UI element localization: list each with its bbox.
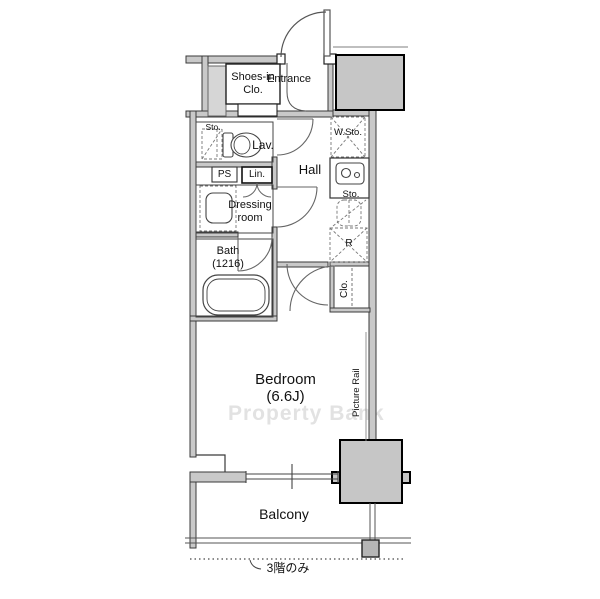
- room-label-balcony: Balcony: [252, 506, 316, 522]
- floorplan: { "plan": { "rooms": { "entrance": "Entr…: [0, 0, 600, 599]
- room-label-bath: Bath (1216): [203, 245, 253, 270]
- pillar-bottom-right: [332, 440, 410, 503]
- bathtub-icon: [203, 275, 269, 315]
- rail-post: [362, 540, 379, 557]
- room-label-bedroom: Bedroom (6.6J): [238, 371, 333, 406]
- label-floor-note: 3階のみ: [258, 562, 318, 576]
- bedroom-door: [287, 264, 335, 311]
- room-label-entrance: Entrance: [260, 73, 318, 86]
- label-storage-lav: Sto.: [202, 123, 224, 133]
- genkan-step-line: [287, 63, 306, 111]
- lav-storage-cabinet: [202, 129, 222, 159]
- room-label-lavatory: Lav.: [248, 139, 278, 153]
- dressing-door: [277, 187, 317, 227]
- room-label-dressing-room: Dressing room: [225, 199, 275, 224]
- label-refrigerator: R: [340, 238, 358, 250]
- label-pipe-space: PS: [212, 169, 237, 181]
- lav-door: [277, 119, 313, 155]
- label-picture-rail: Picture Rail: [352, 368, 363, 417]
- room-label-closet: Clo.: [339, 280, 351, 298]
- pillar-top-right: [336, 55, 404, 110]
- room-label-hall: Hall: [294, 163, 326, 178]
- label-linen: Lin.: [242, 169, 272, 181]
- kitchen-storage: [333, 200, 366, 226]
- wall-step: [196, 455, 225, 472]
- entrance-door: [281, 10, 330, 57]
- bedroom-window: [246, 464, 338, 489]
- label-storage-kitchen: Sto.: [339, 190, 363, 201]
- label-wide-storage: W.Sto.: [332, 128, 364, 139]
